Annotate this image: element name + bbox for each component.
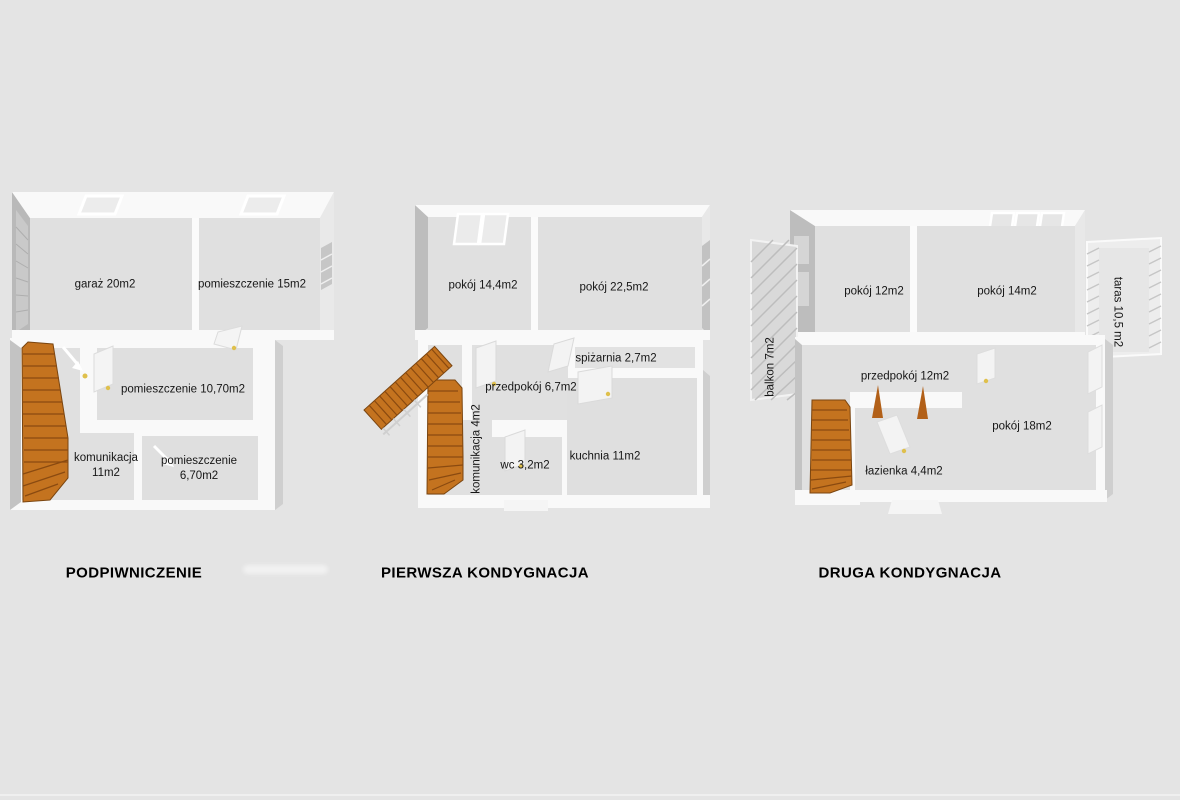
- room-label-text: komunikacja: [74, 451, 138, 466]
- room-label-wc: wc 3,2m2: [500, 459, 549, 474]
- room-label-pomieszczenie-670: pomieszczenie6,70m2: [161, 454, 237, 484]
- room-label-pokoj-18: pokój 18m2: [992, 420, 1051, 435]
- room-label-pokoj-144: pokój 14,4m2: [448, 279, 517, 294]
- room-label-lazienka: łazienka 4,4m2: [865, 465, 942, 480]
- room-label-text: pomieszczenie: [161, 454, 237, 469]
- room-label-text: pokój 18m2: [992, 420, 1051, 435]
- room-label-text: pomieszczenie 10,70m2: [121, 383, 245, 398]
- room-label-text: taras 10,5 m2: [1110, 277, 1125, 347]
- door-leaf-icon: [1088, 345, 1102, 394]
- floor-plan-second-floor: [742, 202, 1172, 542]
- room-label-przedpokoj-12: przedpokój 12m2: [861, 370, 949, 385]
- room-label-text: balkon 7m2: [764, 337, 779, 396]
- door-leaf-icon: [977, 348, 995, 384]
- room-label-taras: taras 10,5 m2: [1110, 277, 1125, 347]
- room-label-text: wc 3,2m2: [500, 459, 549, 474]
- skylight-icon: [454, 214, 482, 244]
- room-label-pomieszczenie-15: pomieszczenie 15m2: [198, 278, 306, 293]
- basement-top-section: [12, 192, 334, 340]
- room-label-text: spiżarnia 2,7m2: [575, 352, 656, 367]
- floor-plan-first-floor: [358, 198, 723, 538]
- room-label-text: garaż 20m2: [75, 278, 136, 293]
- room-label-pokoj-12: pokój 12m2: [844, 285, 903, 300]
- room-label-komunikacja-11: komunikacja11m2: [74, 451, 138, 481]
- room-label-text: przedpokój 12m2: [861, 370, 949, 385]
- window-icon: [702, 240, 710, 336]
- second-floor-top-section: [790, 210, 1085, 342]
- room-label-pomieszczenie-1070: pomieszczenie 10,70m2: [121, 383, 245, 398]
- staircase-icon: [427, 380, 463, 494]
- first-floor-top-section: [415, 205, 710, 340]
- room-label-przedpokoj-67: przedpokój 6,7m2: [485, 381, 576, 396]
- room-label-text: 11m2: [74, 466, 138, 481]
- room-label-text: łazienka 4,4m2: [865, 465, 942, 480]
- room-label-pokoj-225: pokój 22,5m2: [579, 281, 648, 296]
- room-label-text: komunikacja 4m2: [470, 404, 485, 493]
- plan-title-basement: PODPIWNICZENIE: [66, 565, 202, 582]
- room-label-text: przedpokój 6,7m2: [485, 381, 576, 396]
- room-label-pokoj-14: pokój 14m2: [977, 285, 1036, 300]
- skylight-icon: [480, 214, 508, 244]
- room-label-garaz: garaż 20m2: [75, 278, 136, 293]
- room-label-text: kuchnia 11m2: [570, 450, 641, 465]
- room-label-kuchnia: kuchnia 11m2: [570, 450, 641, 465]
- background-divider-line: [0, 794, 1180, 796]
- room-label-text: pokój 22,5m2: [579, 281, 648, 296]
- room-label-text: pokój 14,4m2: [448, 279, 517, 294]
- room-label-text: pokój 12m2: [844, 285, 903, 300]
- room-label-text: pokój 14m2: [977, 285, 1036, 300]
- door-leaf-icon: [578, 366, 612, 404]
- room-label-text: pomieszczenie 15m2: [198, 278, 306, 293]
- door-leaf-icon: [94, 346, 113, 392]
- skylight-icon: [79, 196, 122, 214]
- room-label-komunikacja-4: komunikacja 4m2: [470, 404, 485, 493]
- door-leaf-icon: [1088, 405, 1102, 454]
- floor-plans-image: garaż 20m2 pomieszczenie 15m2 pomieszcze…: [0, 0, 1180, 800]
- room-label-spizarnia: spiżarnia 2,7m2: [575, 352, 656, 367]
- room-label-balkon: balkon 7m2: [764, 337, 779, 396]
- background-artifact: [243, 565, 328, 574]
- skylight-icon: [241, 196, 284, 214]
- plan-title-second-floor: DRUGA KONDYGNACJA: [819, 565, 1002, 582]
- plan-title-first-floor: PIERWSZA KONDYGNACJA: [381, 565, 589, 582]
- room-label-text: 6,70m2: [161, 469, 237, 484]
- staircase-icon: [810, 400, 852, 493]
